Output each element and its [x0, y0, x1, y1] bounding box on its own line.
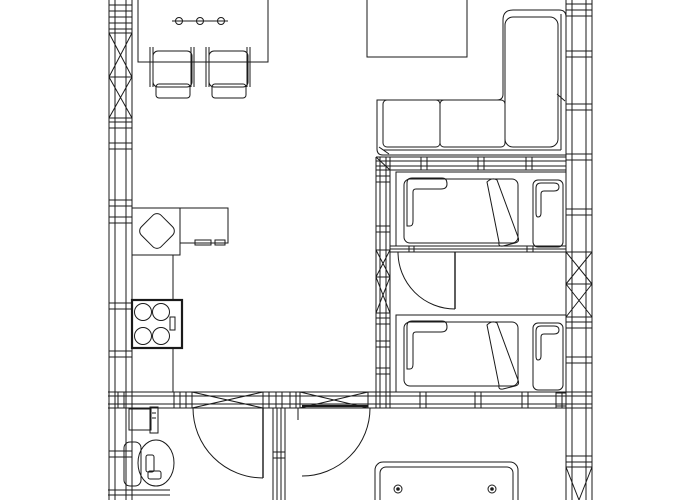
tv-cabinet [367, 0, 467, 57]
floor-plan-canvas [0, 0, 695, 500]
bathroom-vanity [129, 407, 158, 433]
dining-chair-right [206, 47, 250, 98]
floor-plan [0, 0, 695, 500]
stove [132, 300, 182, 348]
bed-2 [396, 315, 566, 392]
corner-sofa [377, 10, 566, 155]
bedroom-front-wall [376, 157, 566, 170]
bed-1 [396, 172, 566, 247]
dining-chair-left [150, 47, 194, 98]
terrace-table [375, 462, 518, 500]
dining-table [138, 0, 268, 62]
hallway-wall [376, 157, 390, 408]
kitchen-sink [137, 211, 177, 251]
bathroom-door [193, 408, 263, 478]
bathroom-partition-wall [273, 408, 285, 500]
terrace-door [298, 406, 370, 476]
bathroom-threshold [108, 490, 170, 495]
bedroom-door [398, 252, 455, 309]
